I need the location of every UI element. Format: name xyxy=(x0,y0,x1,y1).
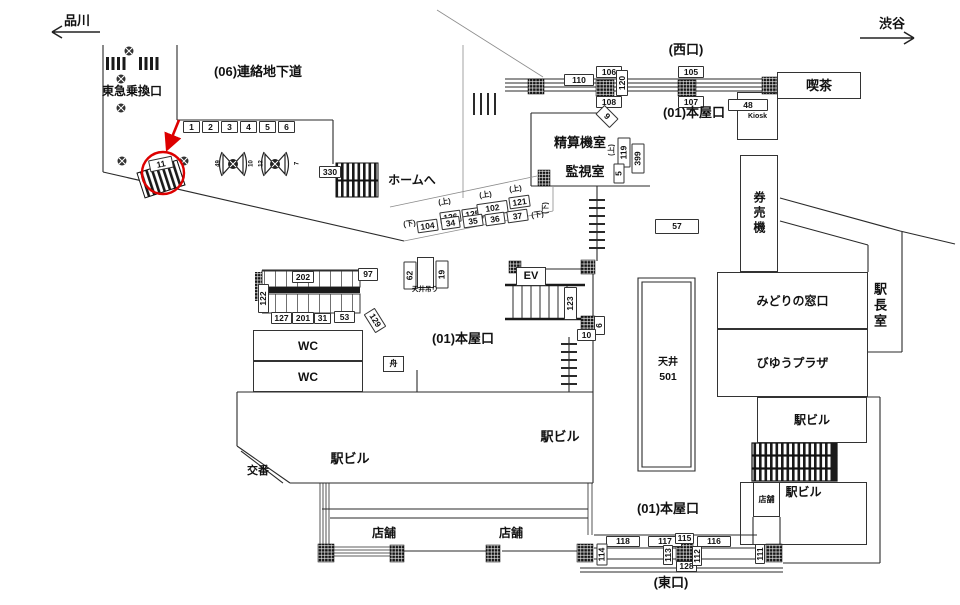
sign-5-row: 5 xyxy=(259,121,276,133)
label-tenpo-1: 店舗 xyxy=(367,526,401,539)
room-kanshi: 監視室 xyxy=(551,164,619,179)
nav-shibuya: 渋谷 xyxy=(872,15,912,31)
gate-num-10: 10 xyxy=(247,158,254,168)
gate-num-7: 7 xyxy=(293,158,300,168)
sign-57: 57 xyxy=(655,219,699,234)
sign-399: 399 xyxy=(631,143,644,173)
ekibiru-upper-right-room: 駅ビル xyxy=(757,397,867,443)
tokyu-gate-bars xyxy=(106,57,159,70)
sign-122: 122 xyxy=(258,284,269,313)
ceiling-hanger-box xyxy=(417,257,434,288)
label-ekibiru-main: 駅ビル xyxy=(328,451,372,466)
sign-118: 118 xyxy=(606,536,640,547)
sign-19: 19 xyxy=(435,260,448,288)
sign-1: 1 xyxy=(183,121,200,133)
label-tenjo: 天井 xyxy=(654,357,682,369)
sign-111: 111 xyxy=(755,544,765,564)
wc-room-1: WC xyxy=(253,330,363,361)
label-tenjo-tsuri: 天井吊り xyxy=(402,286,448,294)
sign-3: 3 xyxy=(221,121,238,133)
area-nishiguchi: (西口) xyxy=(660,41,712,57)
sign-53: 53 xyxy=(334,311,355,323)
gate-num-12: 12 xyxy=(257,158,264,168)
area-honya-bottom: (01)本屋口 xyxy=(627,500,709,516)
sign-112: 112 xyxy=(692,546,702,566)
sign-62: 62 xyxy=(403,261,416,289)
escalator-block xyxy=(752,443,837,481)
gate-num-49: 49 xyxy=(214,158,221,168)
label-home-e: ホームへ xyxy=(381,173,443,187)
wc-room-2: WC xyxy=(253,361,363,392)
sign-31: 31 xyxy=(314,313,331,324)
sign-110: 110 xyxy=(564,74,594,86)
area-honya-top: (01)本屋口 xyxy=(653,104,735,120)
viewplaza-room: びゆうプラザ xyxy=(717,329,868,397)
area-renraku-chikado: (06)連絡地下道 xyxy=(199,63,317,79)
label-koban: 交番 xyxy=(241,465,275,478)
nav-arrow-shibuya xyxy=(860,32,914,44)
sign-116: 116 xyxy=(697,536,731,547)
sign-108: 108 xyxy=(596,96,622,108)
ev-room: EV xyxy=(516,267,546,286)
label-tenpo-2: 店舗 xyxy=(494,526,528,539)
kissa-room: 喫茶 xyxy=(777,72,861,99)
sign-115: 115 xyxy=(675,533,694,544)
area-honya-mid: (01)本屋口 xyxy=(422,330,504,346)
dir-ue-119: (上) xyxy=(606,141,616,158)
label-tenjo-501: 501 xyxy=(654,371,682,383)
sign-105: 105 xyxy=(678,66,704,78)
sign-10: 10 xyxy=(577,329,596,341)
sign-127: 127 xyxy=(271,312,292,324)
ladder-upper xyxy=(589,200,605,248)
sign-114: 114 xyxy=(596,543,607,565)
kenbaiki-room: 券売機 xyxy=(740,155,778,272)
platform-stairs xyxy=(336,163,378,197)
sign-330: 330 xyxy=(319,166,341,178)
station-floor-plan: 喫茶Kiosk券売機みどりの窓口びゆうプラザWCWCEV舟駅ビル駅ビル店舗123… xyxy=(0,0,960,605)
sign-97: 97 xyxy=(358,268,378,281)
sign-201: 201 xyxy=(292,312,314,324)
midori-room: みどりの窓口 xyxy=(717,272,868,329)
sign-6-row: 6 xyxy=(278,121,295,133)
sign-4: 4 xyxy=(240,121,257,133)
label-ekibiru-2: 駅ビル xyxy=(538,429,582,444)
sign-2: 2 xyxy=(202,121,219,133)
sign-123: 123 xyxy=(564,287,577,320)
area-tokyu-transfer: 東急乗換口 xyxy=(93,84,171,97)
sign-113: 113 xyxy=(663,545,673,565)
nav-shinagawa: 品川 xyxy=(57,12,97,28)
funa-room: 舟 xyxy=(383,356,404,372)
area-higashiguchi: (東口) xyxy=(643,574,699,590)
tenpo-room-right: 店舗 xyxy=(753,482,780,517)
sign-202: 202 xyxy=(292,271,314,283)
sign-120: 120 xyxy=(616,70,628,96)
room-ekicho: 駅長室 xyxy=(871,281,888,331)
